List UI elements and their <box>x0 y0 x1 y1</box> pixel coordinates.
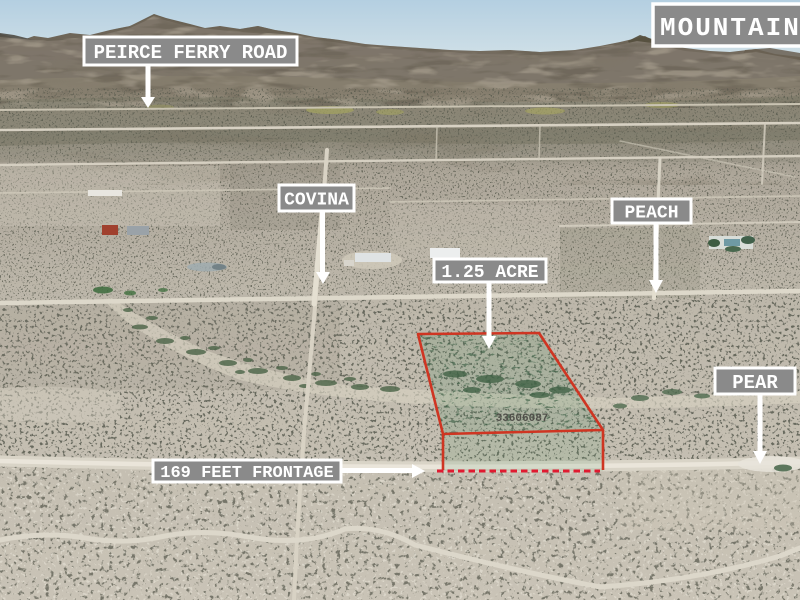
svg-text:MOUNTAIN: MOUNTAIN <box>660 13 800 43</box>
svg-text:33606087: 33606087 <box>496 413 549 425</box>
svg-text:COVINA: COVINA <box>284 191 349 211</box>
svg-text:PEIRCE FERRY ROAD: PEIRCE FERRY ROAD <box>94 42 288 64</box>
svg-text:169 FEET FRONTAGE: 169 FEET FRONTAGE <box>160 464 333 483</box>
svg-text:PEAR: PEAR <box>732 372 778 394</box>
svg-text:PEACH: PEACH <box>624 204 678 224</box>
svg-text:1.25 ACRE: 1.25 ACRE <box>441 263 538 283</box>
